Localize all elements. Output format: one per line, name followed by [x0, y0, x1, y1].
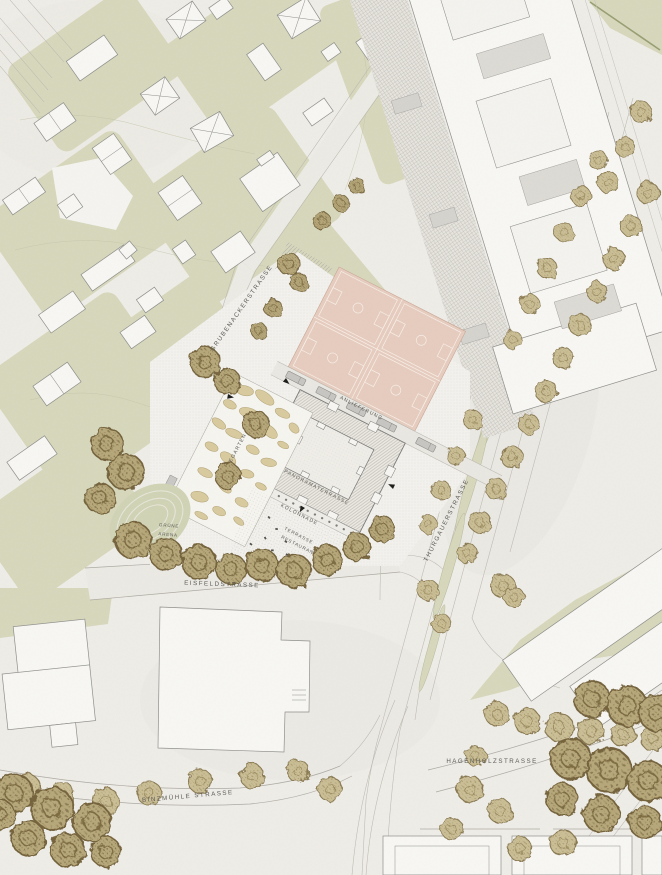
- paper-grain: [0, 0, 662, 875]
- site-plan-map: ANLIEFERUNG PANORAMATERRASSE KOLONNADE T…: [0, 0, 662, 875]
- site-plan-page: ANLIEFERUNG PANORAMATERRASSE KOLONNADE T…: [0, 0, 662, 875]
